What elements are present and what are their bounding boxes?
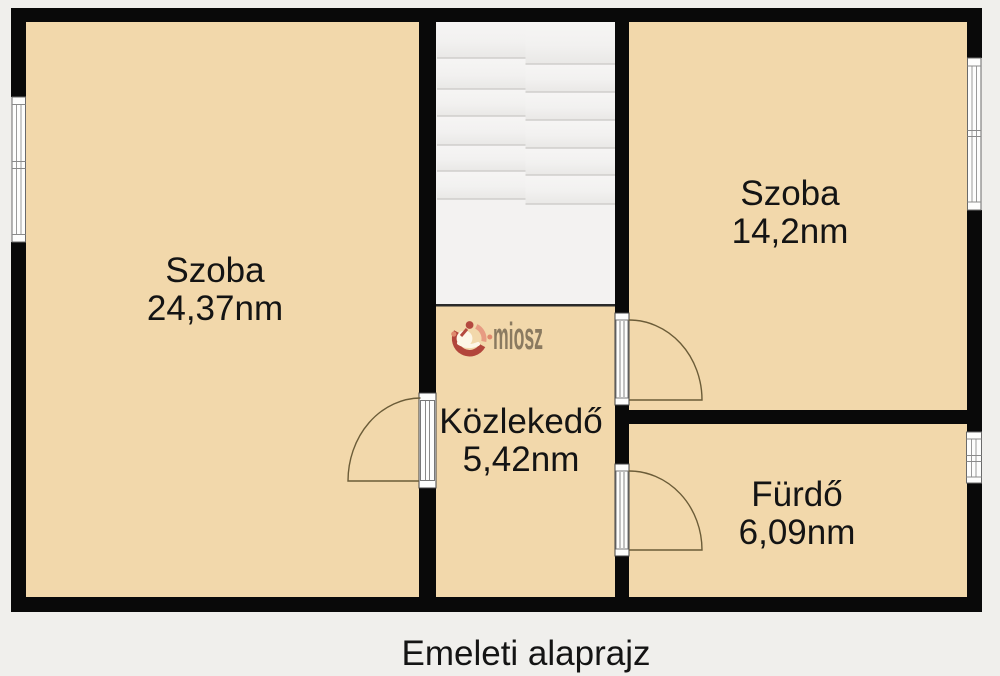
svg-text:miosz: miosz [493, 316, 543, 358]
